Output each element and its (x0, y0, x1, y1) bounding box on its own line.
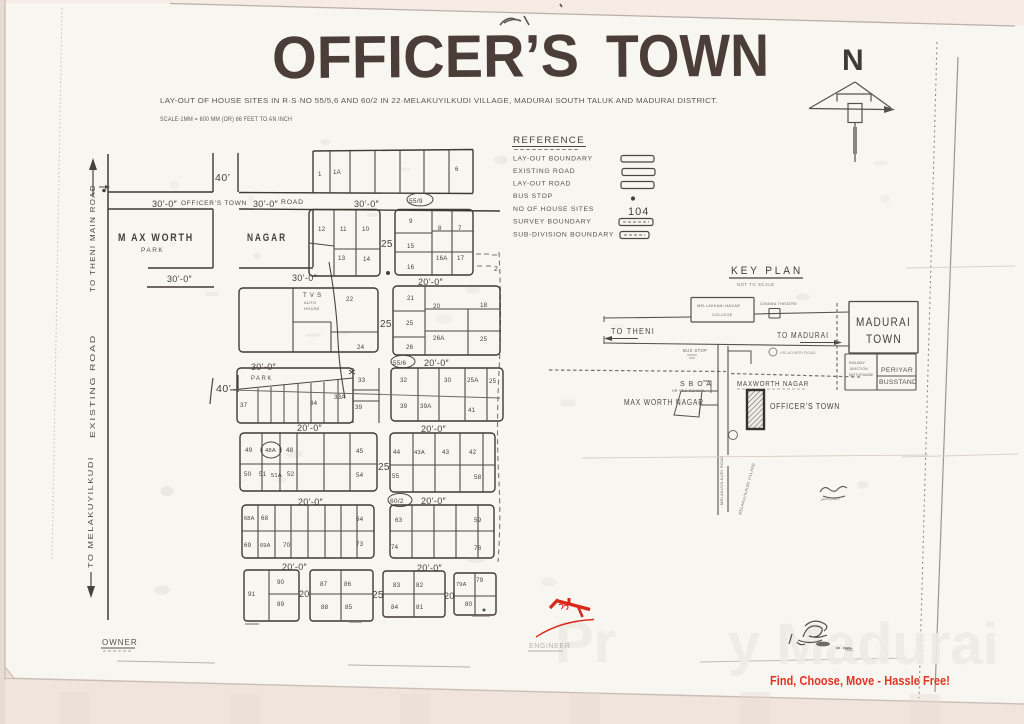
svg-text:24: 24 (357, 344, 365, 351)
svg-text:33: 33 (358, 377, 366, 384)
svg-text:73: 73 (356, 541, 364, 548)
svg-text:12: 12 (318, 226, 326, 233)
svg-text:32: 32 (400, 377, 408, 384)
svg-text:55: 55 (392, 473, 400, 480)
svg-text:30’-0″: 30’-0″ (167, 274, 193, 284)
svg-text:14: 14 (363, 256, 371, 263)
svg-text:VELACHERI ROAD: VELACHERI ROAD (780, 351, 816, 355)
svg-text:TO THENI: TO THENI (611, 327, 655, 336)
svg-text:MELLAKKANI NAGAR: MELLAKKANI NAGAR (697, 304, 740, 308)
svg-text:MADURAI: MADURAI (856, 315, 911, 329)
svg-text:25A: 25A (467, 377, 479, 384)
svg-text:MAX WORTH NAGAR: MAX WORTH NAGAR (624, 398, 704, 407)
svg-text:20: 20 (433, 303, 441, 310)
svg-text:TO THENI MAIN ROAD: TO THENI MAIN ROAD (90, 184, 97, 292)
svg-text:52: 52 (287, 471, 295, 478)
svg-text:NOT TO SCALE: NOT TO SCALE (737, 282, 775, 287)
svg-text:TO MADURAI: TO MADURAI (777, 331, 829, 340)
svg-text:RAILWAY: RAILWAY (849, 361, 866, 365)
svg-text:80: 80 (465, 601, 473, 608)
svg-text:25: 25 (406, 320, 414, 327)
svg-text:MAXWORTH NAGAR: MAXWORTH NAGAR (737, 379, 809, 388)
svg-text:81: 81 (416, 604, 424, 611)
svg-text:44: 44 (393, 449, 401, 456)
svg-text:30’-0″: 30’-0″ (251, 362, 277, 372)
svg-text:91: 91 (248, 591, 256, 598)
svg-text:PERIYAR: PERIYAR (881, 367, 913, 374)
svg-text:78: 78 (474, 545, 482, 552)
svg-text:84: 84 (391, 604, 399, 611)
svg-text:OFFICER’S TOWN: OFFICER’S TOWN (181, 200, 247, 207)
svg-text:y Madurai: y Madurai (728, 612, 999, 677)
svg-text:6: 6 (455, 166, 459, 173)
svg-text:TO MELAKUYILKUDI: TO MELAKUYILKUDI (88, 456, 95, 568)
svg-text:7: 7 (458, 225, 462, 232)
svg-text:20: 20 (444, 591, 455, 601)
svg-text:25: 25 (381, 239, 393, 250)
svg-text:EXISTING ROAD: EXISTING ROAD (513, 168, 575, 175)
svg-text:82: 82 (416, 582, 424, 589)
svg-text:1: 1 (318, 171, 322, 178)
svg-text:40’: 40’ (216, 383, 232, 395)
svg-text:13: 13 (338, 255, 346, 262)
svg-text:37: 37 (240, 402, 248, 409)
svg-text:68: 68 (261, 515, 269, 522)
svg-text:KEY PLAN: KEY PLAN (731, 265, 803, 277)
svg-text:54: 54 (356, 472, 364, 479)
svg-text:BUS STOP: BUS STOP (513, 193, 553, 200)
svg-text:39: 39 (400, 403, 408, 410)
svg-text:LAY-OUT ROAD: LAY-OUT ROAD (513, 181, 571, 188)
svg-text:25: 25 (380, 319, 392, 330)
svg-text:BUS STOP: BUS STOP (683, 348, 707, 353)
svg-text:20’-0″: 20’-0″ (297, 423, 323, 433)
svg-text:21: 21 (407, 295, 415, 302)
svg-text:JUNCTION: JUNCTION (849, 367, 868, 371)
svg-text:REFERENCE: REFERENCE (513, 135, 585, 146)
svg-text:33A: 33A (334, 394, 346, 401)
svg-text:TOWN: TOWN (606, 22, 769, 90)
svg-text:Find, Choose, Move - Hassle Fr: Find, Choose, Move - Hassle Free! (770, 673, 950, 688)
svg-text:41: 41 (468, 407, 476, 414)
svg-text:NO OF HOUSE SITES: NO OF HOUSE SITES (513, 206, 594, 213)
svg-text:64: 64 (356, 516, 364, 523)
svg-text:85: 85 (345, 604, 353, 611)
svg-text:SURVEY BOUNDARY: SURVEY BOUNDARY (513, 219, 592, 226)
svg-text:2: 2 (494, 266, 498, 273)
svg-text:86: 86 (344, 581, 352, 588)
svg-text:OWNER: OWNER (102, 638, 138, 647)
svg-text:16A: 16A (436, 255, 448, 262)
svg-text:25: 25 (480, 336, 488, 343)
svg-text:90: 90 (277, 579, 285, 586)
svg-text:N: N (842, 44, 864, 77)
svg-text:LAY-OUT BOUNDARY: LAY-OUT BOUNDARY (513, 156, 593, 163)
svg-text:1A: 1A (333, 169, 342, 176)
svg-text:45: 45 (356, 448, 364, 455)
svg-text:26: 26 (406, 344, 414, 351)
svg-text:58: 58 (474, 474, 482, 481)
svg-text:40’: 40’ (215, 172, 231, 184)
svg-text:15: 15 (407, 243, 415, 250)
svg-text:25: 25 (489, 378, 497, 385)
svg-text:69A: 69A (260, 543, 271, 549)
svg-text:9: 9 (409, 218, 413, 225)
svg-text:OFFICER’S TOWN: OFFICER’S TOWN (770, 402, 840, 411)
svg-text:104: 104 (628, 206, 649, 218)
svg-text:17: 17 (457, 255, 465, 262)
svg-text:30’-0″: 30’-0″ (292, 273, 318, 283)
svg-text:43: 43 (442, 449, 450, 456)
svg-text:25: 25 (372, 590, 384, 601)
svg-text:TOWN: TOWN (866, 332, 902, 346)
svg-text:ENGINEER: ENGINEER (529, 643, 570, 650)
svg-text:HOUSE: HOUSE (304, 306, 320, 311)
svg-text:PARK: PARK (251, 376, 273, 382)
svg-text:S B O A: S B O A (680, 381, 712, 388)
svg-text:30’-0″: 30’-0″ (354, 199, 380, 209)
svg-text:26A: 26A (433, 335, 445, 342)
svg-text:68A: 68A (244, 516, 255, 522)
svg-text:70: 70 (283, 542, 291, 549)
svg-text:20: 20 (299, 589, 310, 599)
svg-text:8: 8 (438, 225, 442, 232)
svg-text:NAGAR: NAGAR (247, 232, 287, 244)
svg-text:BUSSTAND: BUSSTAND (879, 379, 917, 386)
svg-text:39: 39 (355, 404, 363, 411)
svg-text:22: 22 (346, 296, 354, 303)
svg-text:20’-0″: 20’-0″ (424, 358, 450, 368)
svg-text:AUTO: AUTO (304, 300, 316, 305)
svg-text:49: 49 (245, 447, 253, 454)
svg-text:EXISTING ROAD: EXISTING ROAD (90, 334, 97, 438)
svg-text:43A: 43A (414, 450, 425, 456)
svg-text:ROAD: ROAD (281, 199, 304, 206)
svg-text:CINEMA THEATRE: CINEMA THEATRE (760, 302, 797, 306)
svg-text:25: 25 (378, 462, 390, 473)
svg-text:79A: 79A (456, 582, 467, 588)
svg-text:அளவாளர்: அளவாளர் (820, 496, 841, 501)
svg-text:87: 87 (320, 581, 328, 588)
svg-text:INC: INC (845, 647, 854, 652)
svg-text:69: 69 (244, 542, 252, 549)
svg-text:34: 34 (310, 400, 318, 407)
svg-text:63: 63 (395, 517, 403, 524)
svg-text:60/2: 60/2 (390, 498, 404, 505)
svg-text:39A: 39A (420, 403, 432, 410)
svg-text:89: 89 (277, 601, 285, 608)
svg-text:18: 18 (480, 302, 488, 309)
svg-text:OFFICER’S: OFFICER’S (272, 22, 579, 91)
svg-text:42: 42 (469, 449, 477, 456)
svg-text:T V S: T V S (303, 293, 322, 299)
svg-text:79: 79 (476, 577, 484, 584)
svg-text:SUB-DIVISION BOUNDARY: SUB-DIVISION BOUNDARY (513, 232, 614, 239)
svg-text:88: 88 (321, 604, 329, 611)
svg-text:30’-0″: 30’-0″ (152, 199, 178, 209)
svg-text:M AX WORTH: M AX WORTH (118, 232, 194, 244)
svg-text:74: 74 (391, 544, 399, 551)
svg-text:30’-0″: 30’-0″ (253, 199, 279, 209)
svg-text:51: 51 (259, 471, 267, 478)
svg-text:LAY-OUT OF HOUSE SITES IN: LAY-OUT OF HOUSE SITES IN R·S·NO 55/5,6 … (160, 96, 718, 105)
svg-text:30: 30 (444, 377, 452, 384)
svg-text:11: 11 (340, 226, 347, 233)
svg-text:48A: 48A (265, 448, 276, 454)
svg-text:16: 16 (407, 264, 415, 271)
svg-text:COLLEGE: COLLEGE (712, 313, 733, 317)
svg-text:10: 10 (362, 226, 370, 233)
svg-text:59: 59 (474, 517, 482, 524)
svg-text:83: 83 (393, 582, 401, 589)
svg-text:50: 50 (244, 471, 252, 478)
svg-text:PARK: PARK (141, 247, 164, 254)
svg-text:SCALE·1MM = 600 MM (OR) 66: SCALE·1MM = 600 MM (OR) 66 FEET TO AN IN… (160, 116, 292, 123)
svg-text:MELAKUVILKUDI ROAD: MELAKUVILKUDI ROAD (720, 455, 724, 505)
